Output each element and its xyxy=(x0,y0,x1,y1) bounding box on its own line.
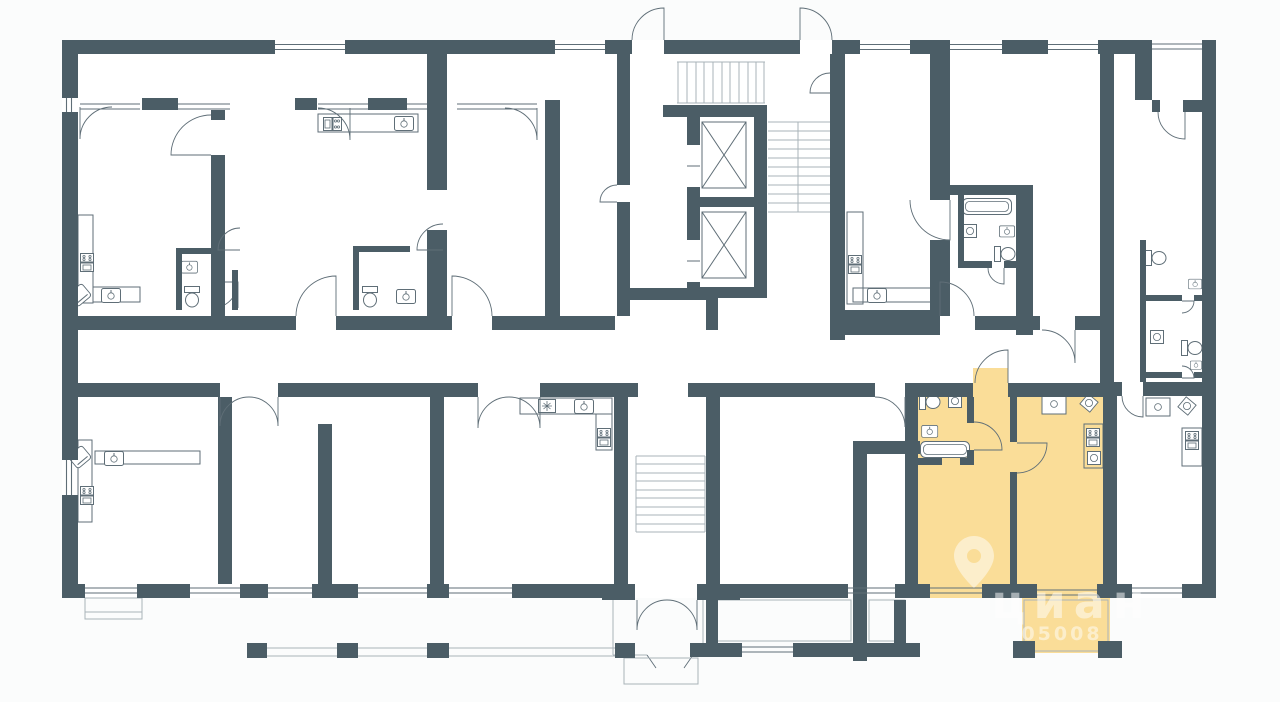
floor-plan-canvas: циан 05008 xyxy=(0,0,1280,702)
watermark-code: 05008 xyxy=(1021,623,1102,645)
left-balcony xyxy=(85,598,142,619)
entrance-porch xyxy=(613,600,703,684)
floor-plan-page: циан 05008 xyxy=(0,0,1280,702)
center-loggia xyxy=(708,600,905,641)
watermark-brand: циан xyxy=(991,575,1152,629)
